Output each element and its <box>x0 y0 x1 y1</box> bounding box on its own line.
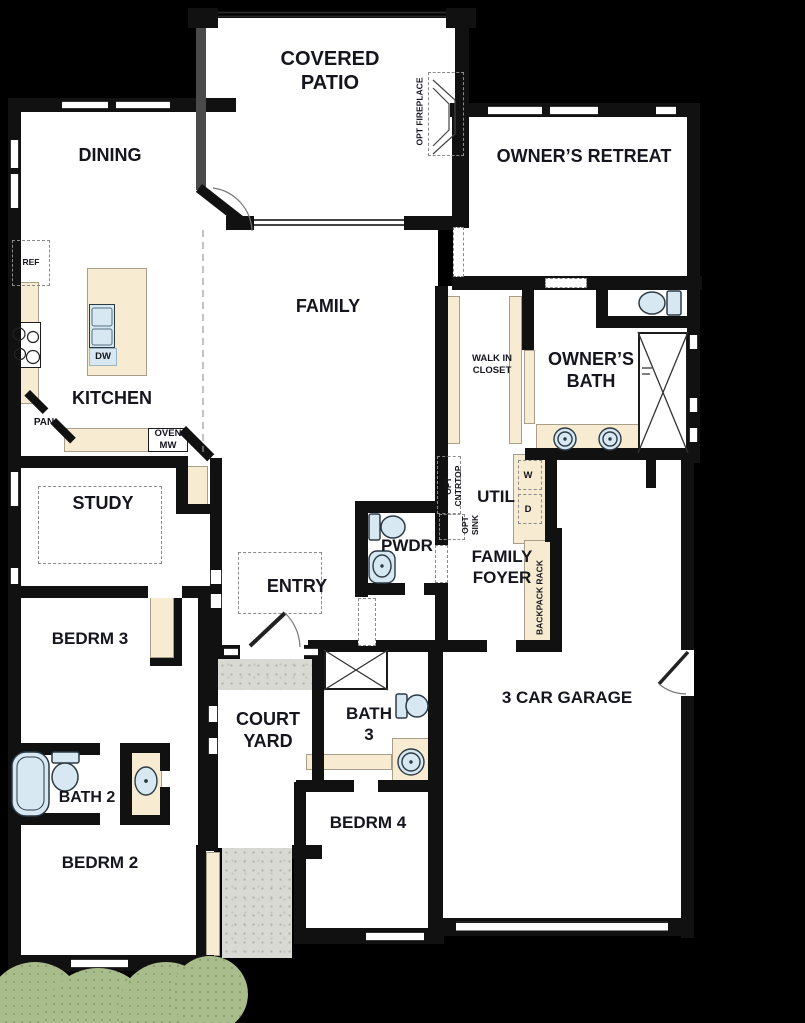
entry-walkway-paving <box>222 848 292 958</box>
label-backpack-rack: BACKPACK RACK <box>534 548 547 648</box>
room-label-study: STUDY <box>51 493 155 515</box>
room-label-dining: DINING <box>58 145 162 167</box>
window <box>656 106 676 115</box>
owners-retreat-door-opening <box>453 227 464 277</box>
window <box>550 106 598 115</box>
room-label-pwdr: PWDR <box>374 537 440 555</box>
room-label-bedrm4: BEDRM 4 <box>316 812 420 834</box>
wall <box>428 640 443 938</box>
window <box>10 140 19 168</box>
window <box>208 706 218 722</box>
wall <box>522 284 534 350</box>
bedrm3-door-opening <box>148 586 182 598</box>
wall <box>424 583 438 595</box>
entry-coat-closet <box>186 466 208 506</box>
shrub <box>172 956 248 1023</box>
wall <box>174 596 182 662</box>
wall <box>160 787 170 825</box>
label-dw: DW <box>89 348 117 366</box>
window <box>10 174 19 208</box>
room-label-bath2: BATH 2 <box>45 788 129 808</box>
hall-foyer-opening <box>358 598 376 646</box>
window <box>210 570 222 584</box>
owners-bath-door-opening <box>545 278 587 288</box>
room-label-entry: ENTRY <box>245 576 349 598</box>
wall <box>8 743 100 755</box>
room-label-family: FAMILY <box>276 296 380 318</box>
wall <box>294 782 306 932</box>
window <box>689 335 698 349</box>
room-label-bath3: BATH 3 <box>346 702 392 748</box>
room-label-covered-patio: COVERED PATIO <box>270 42 390 100</box>
window <box>689 428 698 442</box>
wall <box>355 583 405 595</box>
garage-door <box>456 921 668 931</box>
window <box>304 648 318 656</box>
wall <box>296 780 354 792</box>
room-label-owners-retreat: OWNER’S RETREAT <box>474 146 694 168</box>
front-door-opening <box>240 645 304 659</box>
room-label-kitchen: KITCHEN <box>60 388 164 410</box>
window <box>62 101 108 109</box>
wall <box>176 504 222 514</box>
wall <box>160 743 170 771</box>
garage-side-door-opening <box>681 650 694 696</box>
dishwasher <box>89 304 115 348</box>
window <box>71 959 128 968</box>
window <box>10 472 19 506</box>
window <box>208 738 218 754</box>
window <box>10 568 19 584</box>
window <box>366 932 424 941</box>
label-dryer: D <box>519 503 537 516</box>
bath2-vanity <box>130 746 162 816</box>
window <box>689 398 698 412</box>
label-pan: PAN <box>26 416 62 430</box>
patio-post <box>446 8 476 28</box>
wall <box>435 640 487 652</box>
label-opt-sink: OPT SINK <box>459 508 481 542</box>
bath3-shower <box>324 650 388 690</box>
bedrm3-closet-shelf <box>150 596 174 658</box>
label-oven-mw: OVEN MW <box>150 429 186 451</box>
wall <box>681 458 694 938</box>
room-label-garage: 3 CAR GARAGE <box>466 687 668 709</box>
wall <box>8 456 184 468</box>
window <box>224 648 238 656</box>
label-ref: REF <box>16 256 46 268</box>
wall <box>596 286 608 326</box>
room-label-owners-bath: OWNER’S BATH <box>536 348 646 394</box>
patio-post <box>188 8 218 28</box>
wall <box>596 316 696 328</box>
wall <box>646 460 656 488</box>
room-label-bedrm3: BEDRM 3 <box>38 628 142 650</box>
label-washer: W <box>519 469 537 482</box>
floor-plan: COVERED PATIO OPT FIREPLACE DINING OWNER… <box>0 0 805 1023</box>
window <box>488 106 542 115</box>
room-label-walk-in-closet: WALK IN CLOSET <box>455 352 529 377</box>
room-label-court-yard: COURT YARD <box>222 708 314 754</box>
window <box>116 101 170 109</box>
wall <box>8 586 214 598</box>
room-label-bedrm2: BEDRM 2 <box>48 852 152 874</box>
wall <box>196 845 206 958</box>
room-family <box>200 226 438 460</box>
walkway-side-strip <box>206 852 220 956</box>
wall <box>8 98 21 958</box>
label-opt-fireplace: OPT FIREPLACE <box>414 70 427 154</box>
window <box>210 594 222 608</box>
wall <box>8 813 100 825</box>
wall <box>120 743 132 825</box>
patio-screen-wall <box>196 28 206 190</box>
room-owners-retreat <box>462 115 690 287</box>
optional-fireplace-outline <box>428 72 464 156</box>
